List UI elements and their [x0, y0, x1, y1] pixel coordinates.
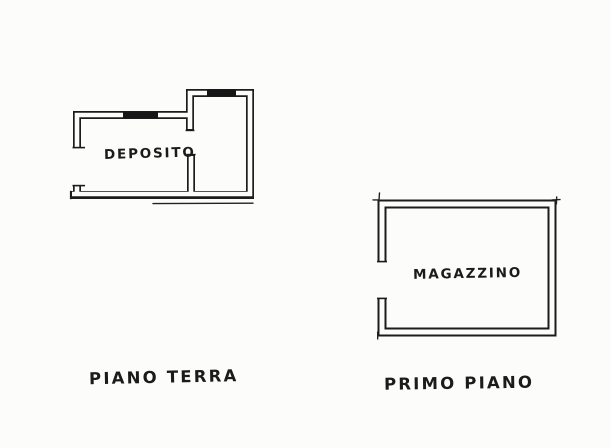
caption-piano-terra: PIANO TERRA — [89, 366, 239, 388]
room-label-deposito: DEPOSITO — [104, 145, 196, 163]
first-floor-plan: MAGAZZINO — [373, 193, 560, 339]
corner-overshoot-tick — [379, 193, 380, 200]
wall-hollow — [77, 115, 189, 147]
wall-hollow — [72, 93, 250, 194]
scanned-floor-plan-page: DEPOSITO MAGAZZINO PIANO TERRA PRIMO PIA… — [0, 0, 611, 448]
ground-floor-plan: DEPOSITO — [71, 90, 253, 204]
room-label-magazzino: MAGAZZINO — [413, 265, 522, 283]
window-marker — [123, 112, 158, 119]
caption-primo-piano: PRIMO PIANO — [384, 373, 534, 394]
window-marker — [207, 90, 236, 97]
floor-plan-drawing: DEPOSITO MAGAZZINO PIANO TERRA PRIMO PIA… — [0, 0, 611, 448]
deposito-right-room-walls — [71, 93, 250, 195]
deposito-left-room-walls — [77, 115, 190, 148]
